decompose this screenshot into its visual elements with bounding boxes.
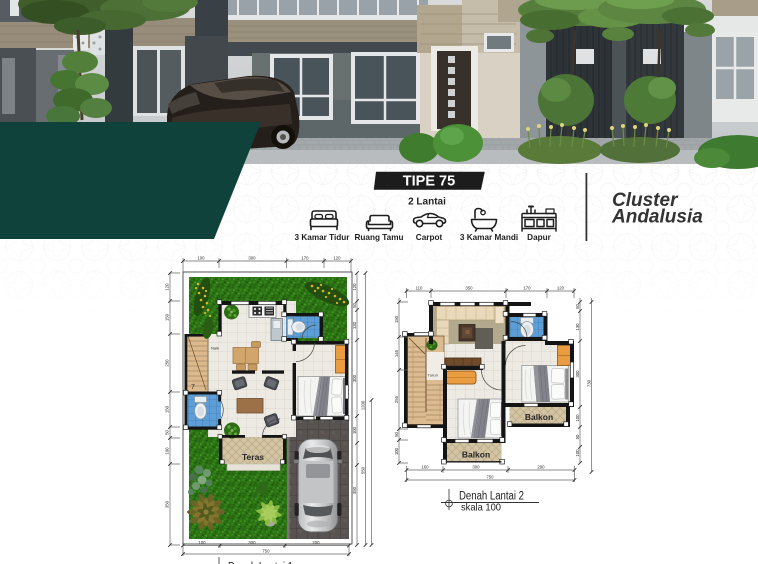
svg-text:750: 750 bbox=[262, 549, 270, 554]
svg-text:350: 350 bbox=[352, 486, 357, 494]
svg-text:Carpot: Carpot bbox=[416, 233, 443, 242]
svg-text:350: 350 bbox=[465, 286, 473, 291]
svg-text:50: 50 bbox=[575, 434, 580, 439]
svg-text:150: 150 bbox=[165, 405, 170, 413]
svg-text:150: 150 bbox=[165, 313, 170, 321]
svg-text:150: 150 bbox=[394, 315, 399, 323]
svg-text:Dapur: Dapur bbox=[527, 233, 551, 242]
svg-text:Balkon: Balkon bbox=[525, 412, 553, 422]
svg-text:110: 110 bbox=[416, 286, 423, 291]
svg-text:160: 160 bbox=[421, 465, 429, 470]
svg-text:750: 750 bbox=[486, 475, 494, 480]
svg-text:300: 300 bbox=[575, 370, 580, 378]
svg-text:130: 130 bbox=[575, 323, 580, 331]
svg-text:170: 170 bbox=[301, 256, 309, 261]
svg-text:50: 50 bbox=[394, 432, 399, 437]
svg-text:130: 130 bbox=[352, 321, 357, 329]
svg-text:300: 300 bbox=[472, 465, 480, 470]
svg-text:1200: 1200 bbox=[361, 400, 366, 410]
svg-text:100: 100 bbox=[165, 447, 170, 455]
svg-text:50: 50 bbox=[165, 430, 170, 435]
svg-text:300: 300 bbox=[248, 256, 256, 261]
svg-text:Andalusia: Andalusia bbox=[611, 207, 703, 228]
svg-text:100: 100 bbox=[394, 447, 399, 455]
svg-text:100: 100 bbox=[197, 256, 205, 261]
svg-text:Balkon: Balkon bbox=[462, 450, 490, 460]
svg-text:Naik: Naik bbox=[211, 346, 219, 351]
svg-text:350: 350 bbox=[165, 500, 170, 508]
svg-text:3 Kamar Mandi: 3 Kamar Mandi bbox=[460, 233, 518, 242]
svg-text:120: 120 bbox=[352, 283, 357, 291]
svg-text:120: 120 bbox=[557, 286, 565, 291]
svg-text:7: 7 bbox=[191, 384, 195, 391]
svg-text:170: 170 bbox=[523, 286, 531, 291]
svg-text:250: 250 bbox=[165, 359, 170, 367]
svg-text:550: 550 bbox=[361, 466, 366, 474]
svg-text:2 Lantai: 2 Lantai bbox=[408, 197, 446, 208]
svg-text:290: 290 bbox=[537, 465, 545, 470]
svg-text:Ruang Tamu: Ruang Tamu bbox=[355, 233, 404, 242]
svg-text:100: 100 bbox=[575, 449, 580, 457]
svg-text:100: 100 bbox=[575, 414, 580, 422]
svg-text:120: 120 bbox=[165, 283, 170, 291]
svg-text:100: 100 bbox=[198, 540, 206, 545]
svg-text:50: 50 bbox=[352, 303, 357, 308]
svg-text:Turun: Turun bbox=[428, 373, 438, 378]
svg-text:TIPE 75: TIPE 75 bbox=[403, 174, 455, 190]
svg-text:3 Kamar Tidur: 3 Kamar Tidur bbox=[295, 233, 351, 242]
svg-text:skala 100: skala 100 bbox=[461, 502, 501, 514]
svg-text:145: 145 bbox=[394, 349, 399, 357]
svg-text:255: 255 bbox=[394, 395, 399, 403]
svg-text:50: 50 bbox=[575, 304, 580, 309]
svg-text:200: 200 bbox=[312, 540, 320, 545]
svg-text:730: 730 bbox=[587, 379, 592, 387]
svg-text:300: 300 bbox=[248, 540, 256, 545]
svg-text:100: 100 bbox=[352, 426, 357, 434]
svg-text:300: 300 bbox=[352, 374, 357, 382]
svg-text:Teras: Teras bbox=[242, 452, 264, 462]
svg-text:120: 120 bbox=[333, 256, 341, 261]
